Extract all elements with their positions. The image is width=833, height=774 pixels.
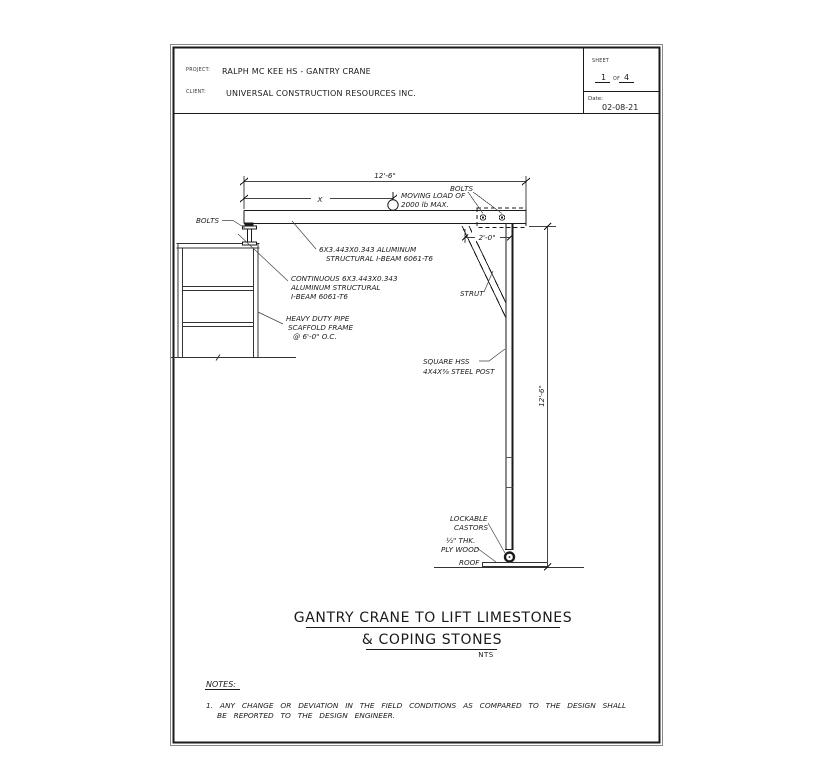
sheet-number: 1 [601, 73, 606, 82]
bolts-left-leader [222, 221, 245, 229]
castor-axle [509, 556, 511, 558]
bolts-right-label: BOLTS [450, 184, 473, 193]
sheet-of-label: OF [613, 76, 620, 82]
beam-spec-label-2: STRUCTURAL I-BEAM 6061-T6 [326, 254, 433, 263]
plywood-label-2: PLY WOOD [441, 545, 480, 554]
bolts-left-label: BOLTS [196, 216, 219, 225]
post-label-2: 4X4X⅜ STEEL POST [423, 367, 495, 376]
drawing-title-line1: GANTRY CRANE TO LIFT LIMESTONES [294, 610, 572, 626]
gantry-crane-drawing: PROJECT: RALPH MC KEE HS - GANTRY CRANE … [0, 0, 833, 774]
post-label-1: SQUARE HSS [423, 357, 470, 366]
project-value: RALPH MC KEE HS - GANTRY CRANE [222, 67, 371, 76]
plate-bolts [480, 215, 505, 221]
moving-load-symbol [388, 200, 398, 210]
scaffold-label-3: @ 6'-0" O.C. [293, 332, 337, 341]
scaffold-label-2: SCAFFOLD FRAME [288, 323, 353, 332]
project-label: PROJECT: [186, 67, 210, 73]
scaffold-label-1: HEAVY DUTY PIPE [286, 314, 350, 323]
date-value: 02-08-21 [602, 103, 638, 112]
scaffold-frame [177, 244, 260, 358]
cont-beam-label-2: ALUMINUM STRUCTURAL [290, 283, 380, 292]
plywood-leader [477, 548, 496, 562]
castors-leader [488, 523, 505, 553]
post-leader [479, 349, 505, 361]
scaffold-leader [258, 312, 283, 324]
castors-label-1: LOCKABLE [450, 514, 488, 523]
beam-length-dimension-lines [244, 176, 526, 209]
beam-spec-label-1: 6X3.443X0.343 ALUMINUM [319, 245, 417, 254]
sheet-label: SHEET [592, 58, 609, 64]
cont-beam-label-1: CONTINUOUS 6X3.443X0.343 [291, 274, 398, 283]
client-value: UNIVERSAL CONSTRUCTION RESOURCES INC. [226, 89, 416, 98]
moving-load-label-2: 2000 lb MAX. [401, 200, 449, 209]
castors-label-2: CASTORS [454, 523, 489, 532]
notes-heading: NOTES: [206, 680, 236, 689]
strut-label: STRUT [460, 289, 484, 298]
beam-length-dim-label: 12'-6" [374, 171, 396, 180]
plywood-pad [483, 563, 548, 567]
drawing-sheet-page: PROJECT: RALPH MC KEE HS - GANTRY CRANE … [0, 0, 833, 774]
cont-beam-leader [238, 234, 288, 281]
note-1-line2: BE REPORTED TO THE DESIGN ENGINEER. [217, 711, 395, 720]
client-label: CLIENT: [186, 89, 206, 95]
sheet-total: 4 [624, 73, 629, 82]
scale-label: NTS [478, 651, 494, 659]
date-label: Date: [588, 96, 603, 102]
beam-spec-leader [292, 221, 316, 249]
cont-beam-label-3: I-BEAM 6061-T6 [291, 292, 348, 301]
continuous-ibeam-section [243, 226, 257, 245]
note-1-line1: 1. ANY CHANGE OR DEVIATION IN THE FIELD … [206, 701, 626, 710]
strut-offset-label: 2'-0" [478, 233, 495, 242]
post-height-label: 12'-6" [537, 385, 546, 407]
plywood-label-1: ½" THK. [446, 536, 475, 545]
drawing-title-line2: & COPING STONES [362, 632, 502, 648]
x-dim-label: X [317, 195, 324, 204]
roof-label: ROOF [459, 558, 480, 567]
